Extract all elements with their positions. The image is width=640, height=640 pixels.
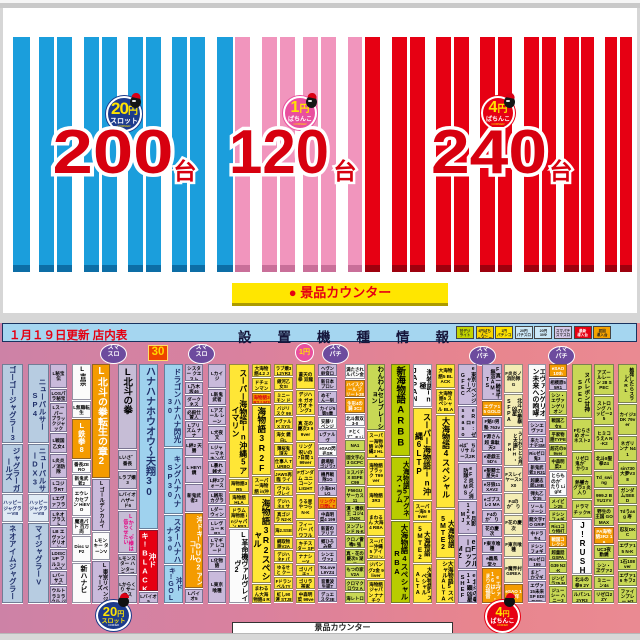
- svg-text:200: 200: [53, 124, 174, 187]
- svg-text:台: 台: [174, 158, 197, 184]
- svg-text:240: 240: [431, 124, 547, 187]
- svg-text:台: 台: [334, 158, 357, 184]
- svg-text:台: 台: [550, 158, 573, 184]
- svg-text:120: 120: [229, 124, 329, 187]
